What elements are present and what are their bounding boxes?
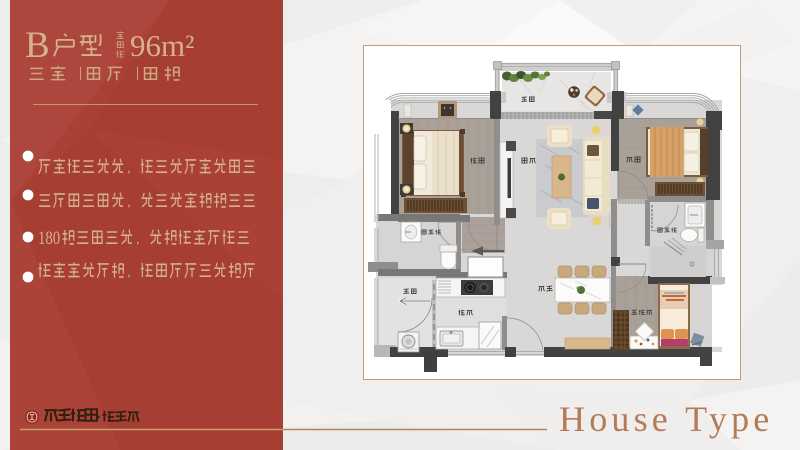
svg-text:House Type: House Type (559, 399, 773, 439)
svg-text:180: 180 (38, 228, 60, 249)
svg-text:96m²: 96m² (130, 28, 194, 63)
svg-text:B: B (25, 25, 50, 66)
